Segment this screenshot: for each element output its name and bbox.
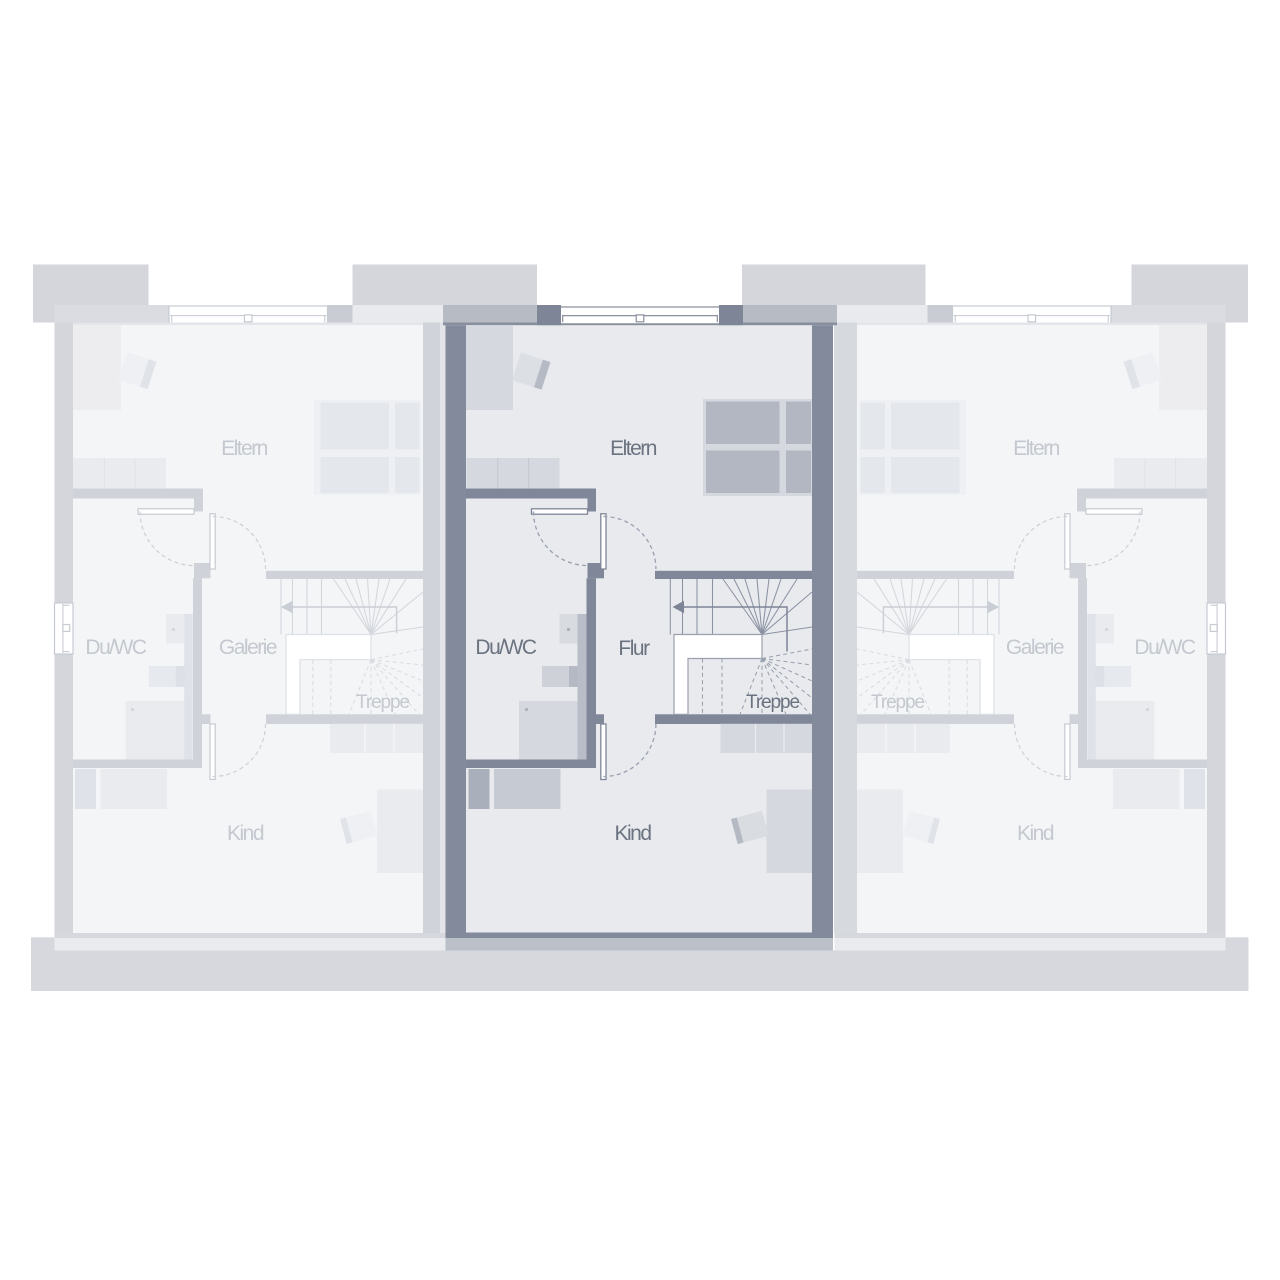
svg-text:Flur: Flur <box>618 637 650 660</box>
svg-text:Du/WC: Du/WC <box>475 636 537 659</box>
svg-text:Galerie: Galerie <box>1006 636 1064 659</box>
svg-text:Eltern: Eltern <box>610 437 657 460</box>
svg-text:Kind: Kind <box>614 822 651 845</box>
svg-text:Treppe: Treppe <box>746 692 799 713</box>
svg-text:Kind: Kind <box>227 822 264 845</box>
svg-text:Eltern: Eltern <box>1013 437 1060 460</box>
svg-text:Kind: Kind <box>1017 822 1054 845</box>
svg-text:Galerie: Galerie <box>219 636 277 659</box>
svg-text:Eltern: Eltern <box>221 437 268 460</box>
svg-text:Du/WC: Du/WC <box>1134 636 1196 659</box>
svg-text:Treppe: Treppe <box>871 692 924 713</box>
svg-text:Du/WC: Du/WC <box>85 636 147 659</box>
svg-text:Treppe: Treppe <box>356 692 409 713</box>
